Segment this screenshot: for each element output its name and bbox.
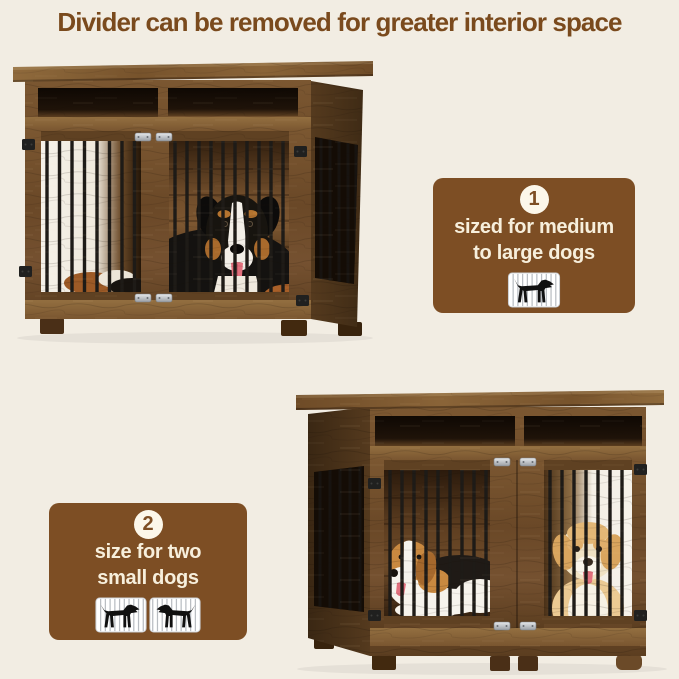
callout-2-line-2: small dogs [97, 565, 198, 591]
callout-1-line-1: sized for medium [454, 214, 614, 240]
corner-bracket-icon [368, 478, 381, 489]
two-dogs-in-cages-icon [94, 597, 202, 638]
crate-2-furniture [296, 390, 667, 675]
corner-bracket-icon [22, 139, 35, 150]
door-hinge-icon [135, 133, 151, 141]
infographic-canvas: Divider can be removed for greater inter… [0, 0, 679, 679]
callout-1-line-2: to large dogs [473, 240, 595, 266]
callout-two-small-dogs: 2 size for two small dogs [49, 503, 247, 640]
crate-two-dogs-illustration [272, 380, 672, 676]
badge-2-text: 2 [142, 513, 153, 535]
badge-number-1: 1 [520, 185, 549, 214]
badge-1-text: 1 [528, 188, 539, 210]
callout-2-line-1: size for two [95, 539, 201, 565]
dog-in-cage-icon [507, 272, 561, 313]
door-hinge-icon [494, 458, 510, 466]
crate-with-large-dog-photo [5, 57, 405, 347]
crate-with-two-small-dogs-photo [272, 380, 672, 676]
crate-1-furniture [13, 61, 373, 344]
crate-large-dog-illustration [5, 57, 405, 347]
page-title: Divider can be removed for greater inter… [0, 7, 679, 38]
callout-medium-large-dogs: 1 sized for medium to large dogs [433, 178, 635, 313]
badge-number-2: 2 [134, 510, 163, 539]
